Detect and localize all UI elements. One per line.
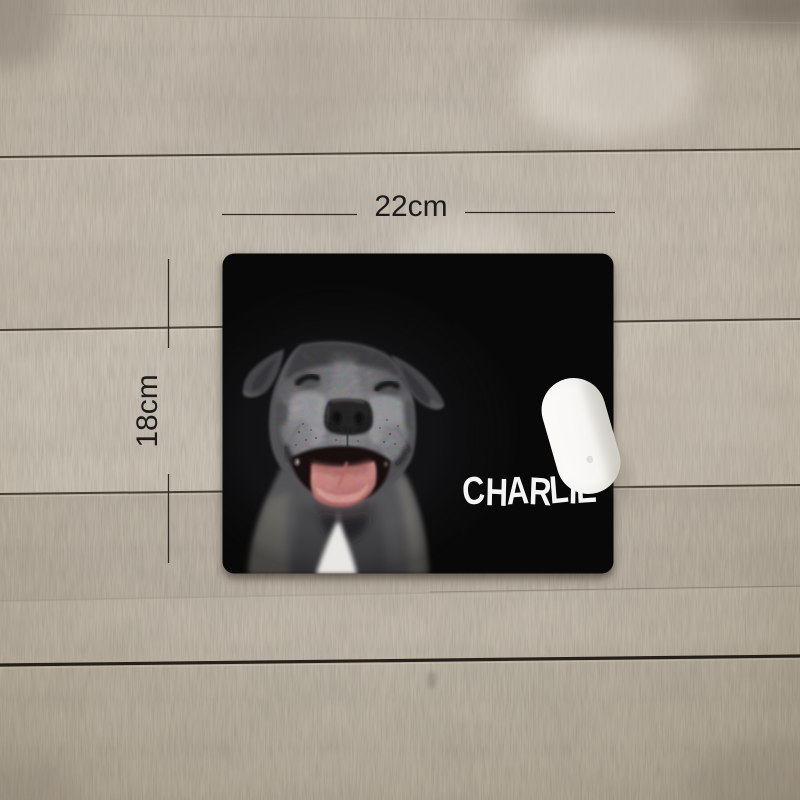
svg-text:22cm: 22cm	[374, 190, 447, 223]
svg-text:18cm: 18cm	[131, 374, 164, 447]
